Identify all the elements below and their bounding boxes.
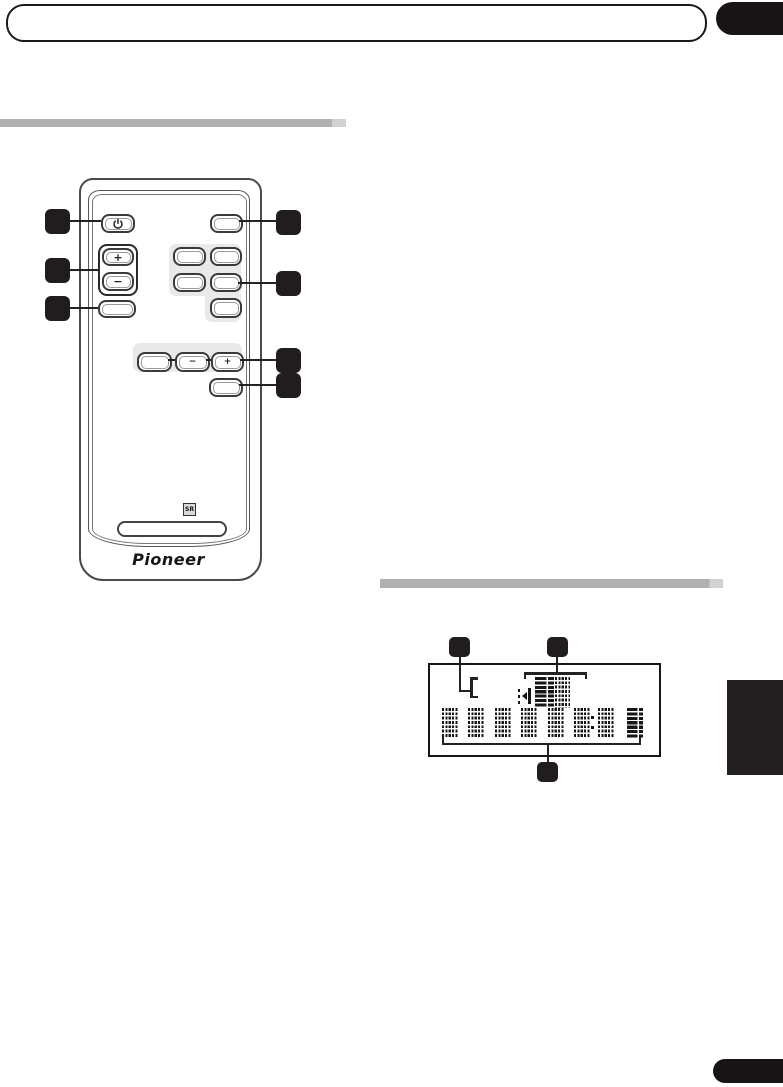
callout-badge-6: [276, 348, 301, 373]
dot-matrix-char: [574, 708, 590, 738]
mute-button: [98, 300, 136, 318]
dot-matrix-char: [548, 708, 564, 738]
callout-badge-5: [276, 271, 301, 296]
bottom-bracket: [442, 743, 641, 745]
callout-line: [168, 359, 175, 361]
colon-dot: [591, 726, 594, 729]
band-button: [137, 352, 172, 372]
header-title-bar: [6, 4, 707, 42]
callout-line: [70, 220, 101, 222]
section-heading-bar-right: [380, 579, 723, 588]
remote-control-figure: + − − + SR Pioneer: [40, 170, 310, 590]
sr-jack-mark: SR: [183, 503, 196, 516]
callout-line: [240, 359, 276, 361]
callout-line: [459, 657, 461, 692]
section-tab-middle-right: [727, 680, 783, 775]
tune-down-button: −: [175, 352, 210, 372]
display-callout-badge-1: [449, 637, 470, 657]
power-icon: [112, 218, 124, 230]
bottom-bracket: [442, 737, 444, 745]
tuned-indicator-icon: [518, 688, 532, 704]
function-button-1: [173, 247, 206, 266]
manual-page: + − − + SR Pioneer: [0, 0, 783, 1087]
volume-up-button: +: [102, 248, 134, 266]
top-bracket: [524, 672, 587, 675]
callout-line: [556, 657, 558, 672]
page-number-tab: [713, 1059, 783, 1083]
brand-logo: Pioneer: [79, 550, 258, 569]
transmitter-window: [117, 521, 227, 537]
dot-matrix-char: [555, 677, 570, 708]
sr-jack-label: SR: [185, 506, 194, 513]
section-tab-top-right: [716, 2, 783, 35]
display-callout-badge-2: [547, 637, 568, 657]
callout-badge-4: [276, 210, 301, 235]
input-select-button: [210, 214, 243, 233]
volume-down-button: −: [102, 272, 134, 291]
indicator-bracket: [470, 696, 478, 699]
indicator-bracket: [470, 677, 478, 680]
callout-badge-3: [45, 296, 70, 321]
callout-badge-2: [45, 258, 70, 283]
volume-up-label: +: [104, 250, 132, 264]
function-button-3: [173, 273, 206, 292]
dot-matrix-char: [442, 708, 458, 738]
power-button: [101, 214, 135, 233]
display-callout-badge-3: [537, 762, 558, 782]
top-bracket: [524, 672, 526, 679]
function-button-5: [210, 298, 242, 318]
callout-line: [238, 282, 276, 284]
section-heading-bar-left: [0, 119, 346, 127]
colon-dot: [591, 716, 594, 719]
volume-down-label: −: [104, 274, 132, 289]
dot-matrix-char: [598, 708, 614, 738]
dot-matrix-char: [521, 708, 537, 738]
bottom-bracket: [639, 737, 641, 745]
callout-badge-1: [45, 209, 70, 234]
callout-line: [547, 743, 549, 762]
callout-line: [239, 384, 276, 386]
function-button-2: [210, 247, 242, 266]
tune-up-label: +: [213, 354, 242, 370]
dot-matrix-char-bold: [535, 677, 554, 708]
dot-matrix-char: [495, 708, 511, 738]
dot-matrix-char: [468, 708, 484, 738]
tune-up-button: +: [211, 352, 244, 372]
callout-line: [70, 269, 98, 271]
callout-line: [206, 359, 211, 361]
top-bracket: [585, 672, 587, 679]
callout-line: [239, 220, 276, 222]
tune-down-label: −: [177, 354, 208, 370]
callout-badge-7: [276, 373, 301, 398]
callout-line: [70, 307, 98, 309]
display-button: [209, 378, 243, 397]
display-figure: [415, 630, 675, 790]
dot-matrix-char-bold: [627, 708, 643, 738]
